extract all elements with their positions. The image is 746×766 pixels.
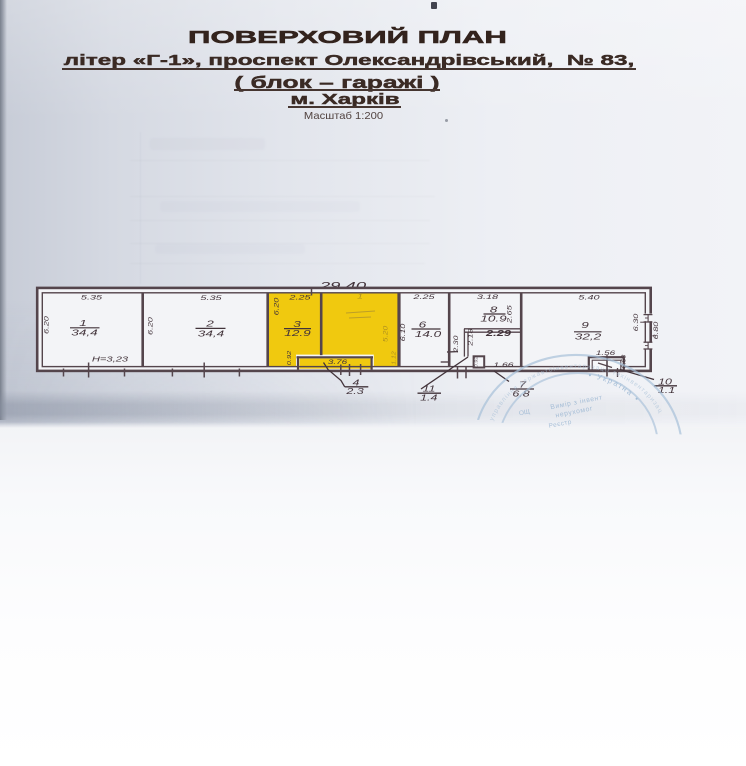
svg-text:3.18: 3.18: [477, 293, 498, 300]
svg-text:11: 11: [423, 386, 436, 394]
svg-text:6.10: 6.10: [399, 323, 407, 341]
svg-text:8: 8: [490, 306, 498, 315]
svg-text:32,2: 32,2: [575, 333, 602, 342]
svg-text:5.35: 5.35: [81, 293, 103, 300]
svg-text:1: 1: [357, 293, 363, 300]
svg-text:34,4: 34,4: [198, 330, 224, 339]
svg-text:Реєстр: Реєстр: [548, 419, 572, 430]
svg-text:3.76: 3.76: [328, 359, 348, 366]
svg-text:6.20: 6.20: [43, 316, 51, 334]
svg-text:34,4: 34,4: [71, 329, 97, 338]
svg-text:0.92: 0.92: [287, 350, 293, 365]
svg-text:6.30: 6.30: [632, 313, 640, 331]
svg-text:1.12: 1.12: [391, 351, 397, 365]
svg-text:5.20: 5.20: [382, 325, 390, 342]
svg-text:0.92: 0.92: [474, 356, 479, 367]
svg-text:1: 1: [79, 319, 87, 328]
svg-text:2.30: 2.30: [452, 335, 460, 354]
svg-text:4: 4: [353, 379, 360, 387]
svg-text:9: 9: [581, 321, 589, 330]
svg-text:6.80: 6.80: [652, 321, 660, 339]
svg-text:1.56: 1.56: [596, 350, 616, 357]
svg-text:2.29: 2.29: [485, 329, 511, 338]
svg-text:2.18: 2.18: [466, 328, 474, 347]
svg-text:6.20: 6.20: [147, 317, 155, 335]
svg-text:2.25: 2.25: [412, 293, 436, 300]
svg-text:ОЩ: ОЩ: [518, 408, 530, 417]
svg-text:6.20: 6.20: [273, 297, 281, 315]
svg-text:10.9: 10.9: [480, 315, 507, 324]
svg-text:2: 2: [205, 320, 215, 329]
svg-text:14.0: 14.0: [415, 330, 442, 339]
svg-text:1.66: 1.66: [493, 361, 513, 368]
svg-text:держкомунгосп управління держа: держкомунгосп управління державтоінвента…: [483, 363, 664, 482]
svg-text:1.4: 1.4: [420, 395, 438, 403]
svg-text:Н=3,23: Н=3,23: [92, 355, 129, 363]
svg-text:29.40: 29.40: [319, 281, 367, 292]
svg-text:5.35: 5.35: [200, 294, 222, 301]
svg-text:12.9: 12.9: [284, 329, 311, 338]
svg-text:3: 3: [293, 320, 301, 329]
svg-text:2.3: 2.3: [345, 388, 364, 396]
svg-text:5.40: 5.40: [578, 293, 599, 300]
svg-text:2.65: 2.65: [506, 305, 514, 325]
svg-text:10: 10: [658, 378, 672, 386]
svg-text:2.25: 2.25: [288, 293, 312, 300]
svg-text:6: 6: [419, 321, 427, 330]
